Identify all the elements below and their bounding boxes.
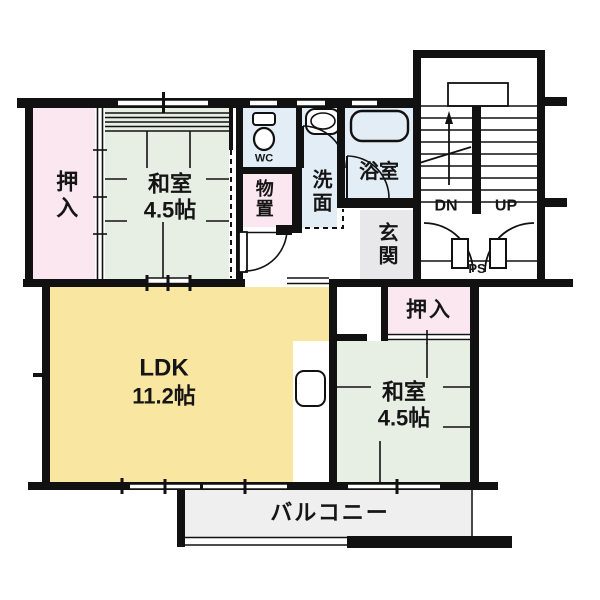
window-top-yokushitsu bbox=[352, 100, 377, 107]
toilet-tank-icon bbox=[253, 113, 275, 125]
washitsu-bottom-size: 4.5帖 bbox=[378, 406, 431, 432]
wall-left-upper bbox=[25, 98, 33, 287]
wall-stub-right-1 bbox=[545, 97, 567, 106]
stair-break-line bbox=[416, 147, 471, 164]
wall-mid-right bbox=[329, 279, 573, 287]
yokushitsu-fill bbox=[345, 108, 413, 198]
ldk-name: LDK bbox=[132, 354, 196, 383]
wall-east bbox=[470, 279, 479, 487]
floor-plan: 押入 和室 4.5帖 WC 物置 洗面 浴室 玄関 DN UP PS 押入 和室… bbox=[0, 0, 600, 600]
balcony-label: バルコニー bbox=[270, 500, 390, 526]
window-top-wc bbox=[250, 100, 277, 107]
wall-joint-tick-bottom bbox=[121, 478, 124, 494]
ldk-size: 11.2帖 bbox=[132, 383, 196, 409]
wall-balcony-left bbox=[177, 488, 185, 547]
oshiire-left-label: 押入 bbox=[52, 170, 78, 222]
wall-washitsu-b-top-1 bbox=[337, 334, 367, 341]
genkan-label: 玄関 bbox=[374, 222, 398, 268]
ldk-fill-upper bbox=[50, 287, 329, 341]
stairs-up-label: UP bbox=[495, 196, 517, 215]
oshiire-right-label: 押入 bbox=[406, 297, 452, 322]
opening-washitsu-b-entry bbox=[367, 334, 381, 341]
wall-mid-left bbox=[23, 279, 245, 287]
wall-stair-top bbox=[413, 50, 545, 58]
opening-hall-ldk bbox=[287, 278, 329, 285]
stair-door-leaf-left bbox=[452, 239, 468, 268]
wall-ldk-washitsu bbox=[329, 287, 337, 482]
wall-monooki-bottom-block bbox=[276, 225, 292, 235]
ldk-label: LDK 11.2帖 bbox=[132, 354, 196, 409]
wall-stair-right bbox=[537, 50, 545, 287]
kitchen-unit-icon bbox=[296, 371, 325, 406]
wall-stair-left bbox=[413, 50, 421, 287]
toilet-bowl-icon bbox=[254, 128, 274, 150]
monooki-label: 物置 bbox=[252, 179, 274, 219]
wc-label: WC bbox=[255, 152, 273, 165]
washitsu-top-label: 和室 4.5帖 bbox=[144, 172, 197, 225]
wall-wc-right bbox=[296, 108, 302, 174]
stair-door-leaf-right bbox=[490, 239, 506, 268]
stair-landing bbox=[448, 83, 508, 106]
wall-balcony-bottom-right bbox=[347, 536, 512, 548]
washitsu-top-size: 4.5帖 bbox=[144, 198, 197, 224]
window-top-senmen bbox=[297, 100, 325, 107]
wall-oshiire-right-left bbox=[381, 287, 388, 341]
hall-door-leaf bbox=[239, 232, 247, 272]
wall-stub-right-2 bbox=[545, 198, 567, 207]
yokushitsu-label: 浴室 bbox=[359, 160, 399, 184]
hall-door-arc bbox=[245, 229, 287, 271]
stairs-down-label: DN bbox=[434, 196, 457, 215]
stair-center-wall bbox=[472, 106, 481, 214]
wall-left-ldk bbox=[42, 279, 50, 490]
wall-wc-bottom bbox=[236, 167, 302, 174]
wall-monooki-right bbox=[292, 174, 302, 233]
washitsu-bottom-name: 和室 bbox=[378, 380, 431, 406]
wall-yokushitsu-bottom bbox=[337, 198, 413, 208]
stairwell bbox=[416, 83, 537, 272]
wall-washitsu-top-right-thin bbox=[229, 108, 233, 150]
wall-tick-ldk-left bbox=[33, 373, 43, 377]
stairs-ps-label: PS bbox=[468, 261, 485, 277]
washitsu-top-name: 和室 bbox=[144, 172, 197, 198]
washitsu-bottom-label: 和室 4.5帖 bbox=[378, 380, 431, 433]
senmen-label: 洗面 bbox=[308, 169, 332, 215]
